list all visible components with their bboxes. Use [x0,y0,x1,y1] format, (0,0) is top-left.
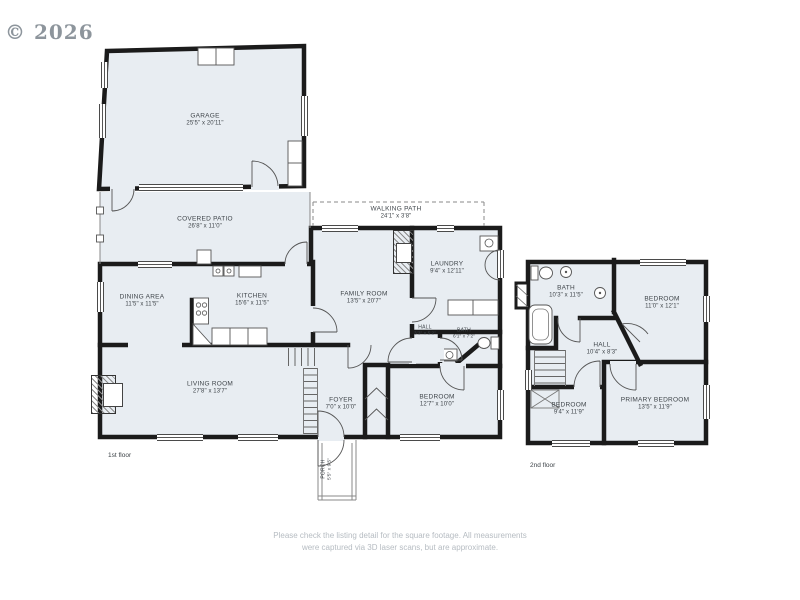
room-name: PRIMARY BEDROOM [621,397,690,405]
room-label-hall-1f: HALL 3'3" x 5'2" [414,326,436,337]
room-dims: 11'5" x 11'5" [120,301,165,309]
room-dims: 11'0" x 12'1" [644,303,679,311]
patio-kitchen-door-swing [285,242,307,264]
room-label-covered-patio: COVERED PATIO 26'8" x 11'0" [177,216,233,231]
bedroom-door-swing [440,366,464,390]
room-name: BEDROOM [644,296,679,304]
room-dims: 10'4" x 8'3" [587,349,618,357]
room-dims: 7'0" x 10'0" [326,404,357,412]
laundry-closet-doors [485,250,500,280]
room-dims: 15'6" x 11'5" [235,300,269,308]
room-dims: 24'1" x 3'8" [371,213,422,221]
room-name: WALKING PATH [371,206,422,214]
room-label-bath-1f: BATH 6'1" x 7'2" [453,329,475,340]
room-label-walking-path: WALKING PATH 24'1" x 3'8" [371,206,422,221]
room-dims: 9'4" x 12'11" [430,268,464,276]
first-floor-tag: 1st floor [108,452,131,459]
room-name: LIVING ROOM [187,381,233,389]
room-label-family-room: FAMILY ROOM 13'5" x 20'7" [340,291,387,306]
room-label-foyer: FOYER 7'0" x 10'0" [326,397,357,412]
bath2-door-swing [558,318,580,342]
room-dims: 27'8" x 13'7" [187,388,233,396]
room-label-garage: GARAGE 25'5" x 20'11" [186,113,223,128]
primary-bedroom-door-swing [610,364,636,390]
room-label-bath-2f: BATH 10'3" x 11'5" [549,285,583,300]
kitchen-family-door-swing [313,308,337,332]
upper-bedroom-door-swing [622,323,648,342]
garage-patio-door-swing [112,189,134,211]
garage-door-swing [252,161,278,187]
disclaimer: Please check the listing detail for the … [0,530,800,554]
room-name: BEDROOM [419,394,454,402]
closet-bifold-doors [365,388,388,420]
disclaimer-line1: Please check the listing detail for the … [0,530,800,542]
room-label-living-room: LIVING ROOM 27'8" x 13'7" [187,381,233,396]
family-foyer-door-swing [348,345,371,368]
room-name: KITCHEN [235,293,269,301]
room-name: FOYER [326,397,357,405]
room-label-hall-2f: HALL 10'4" x 8'3" [587,342,618,357]
floor-plan-canvas: © 2026 [0,0,800,600]
room-dims: 6'1" x 7'2" [453,334,475,340]
room-name: DINING AREA [120,294,165,302]
room-dims: 9'4" x 11'9" [551,409,586,417]
room-dims: 10'3" x 11'5" [549,292,583,300]
room-label-kitchen: KITCHEN 15'6" x 11'5" [235,293,269,308]
room-label-porch: PORCH 5'5" x 9'5" [322,458,333,480]
room-label-primary-bedroom: PRIMARY BEDROOM 13'5" x 11'9" [621,397,690,412]
room-name: GARAGE [186,113,223,121]
laundry-door-swing [412,298,436,322]
room-name: HALL [587,342,618,350]
room-label-bedroom-1f: BEDROOM 12'7" x 10'0" [419,394,454,409]
front-door-swing-in [318,411,344,437]
room-label-bedroom-upper: BEDROOM 11'0" x 12'1" [644,296,679,311]
room-dims: 12'7" x 10'0" [419,401,454,409]
family-hall-door-swing [388,338,412,362]
room-label-laundry: LAUNDRY 9'4" x 12'11" [430,261,464,276]
hall-bath-door-swing [440,338,462,360]
room-label-bedroom-lower: BEDROOM 9'4" x 11'9" [551,402,586,417]
room-name: PORCH [322,458,328,480]
bedroom2-door-swing [574,361,600,387]
room-name: COVERED PATIO [177,216,233,224]
room-label-dining-area: DINING AREA 11'5" x 11'5" [120,294,165,309]
room-dims: 5'5" x 9'5" [327,458,333,480]
disclaimer-line2: were captured via 3D laser scans, but ar… [0,542,800,554]
room-name: LAUNDRY [430,261,464,269]
room-dims: 13'5" x 11'9" [621,404,690,412]
room-dims: 26'8" x 11'0" [177,223,233,231]
room-dims: 3'3" x 5'2" [414,331,436,337]
room-name: FAMILY ROOM [340,291,387,299]
room-name: BATH [549,285,583,293]
room-name: BEDROOM [551,402,586,410]
room-dims: 25'5" x 20'11" [186,120,223,128]
second-floor-tag: 2nd floor [530,462,555,469]
room-dims: 13'5" x 20'7" [340,298,387,306]
